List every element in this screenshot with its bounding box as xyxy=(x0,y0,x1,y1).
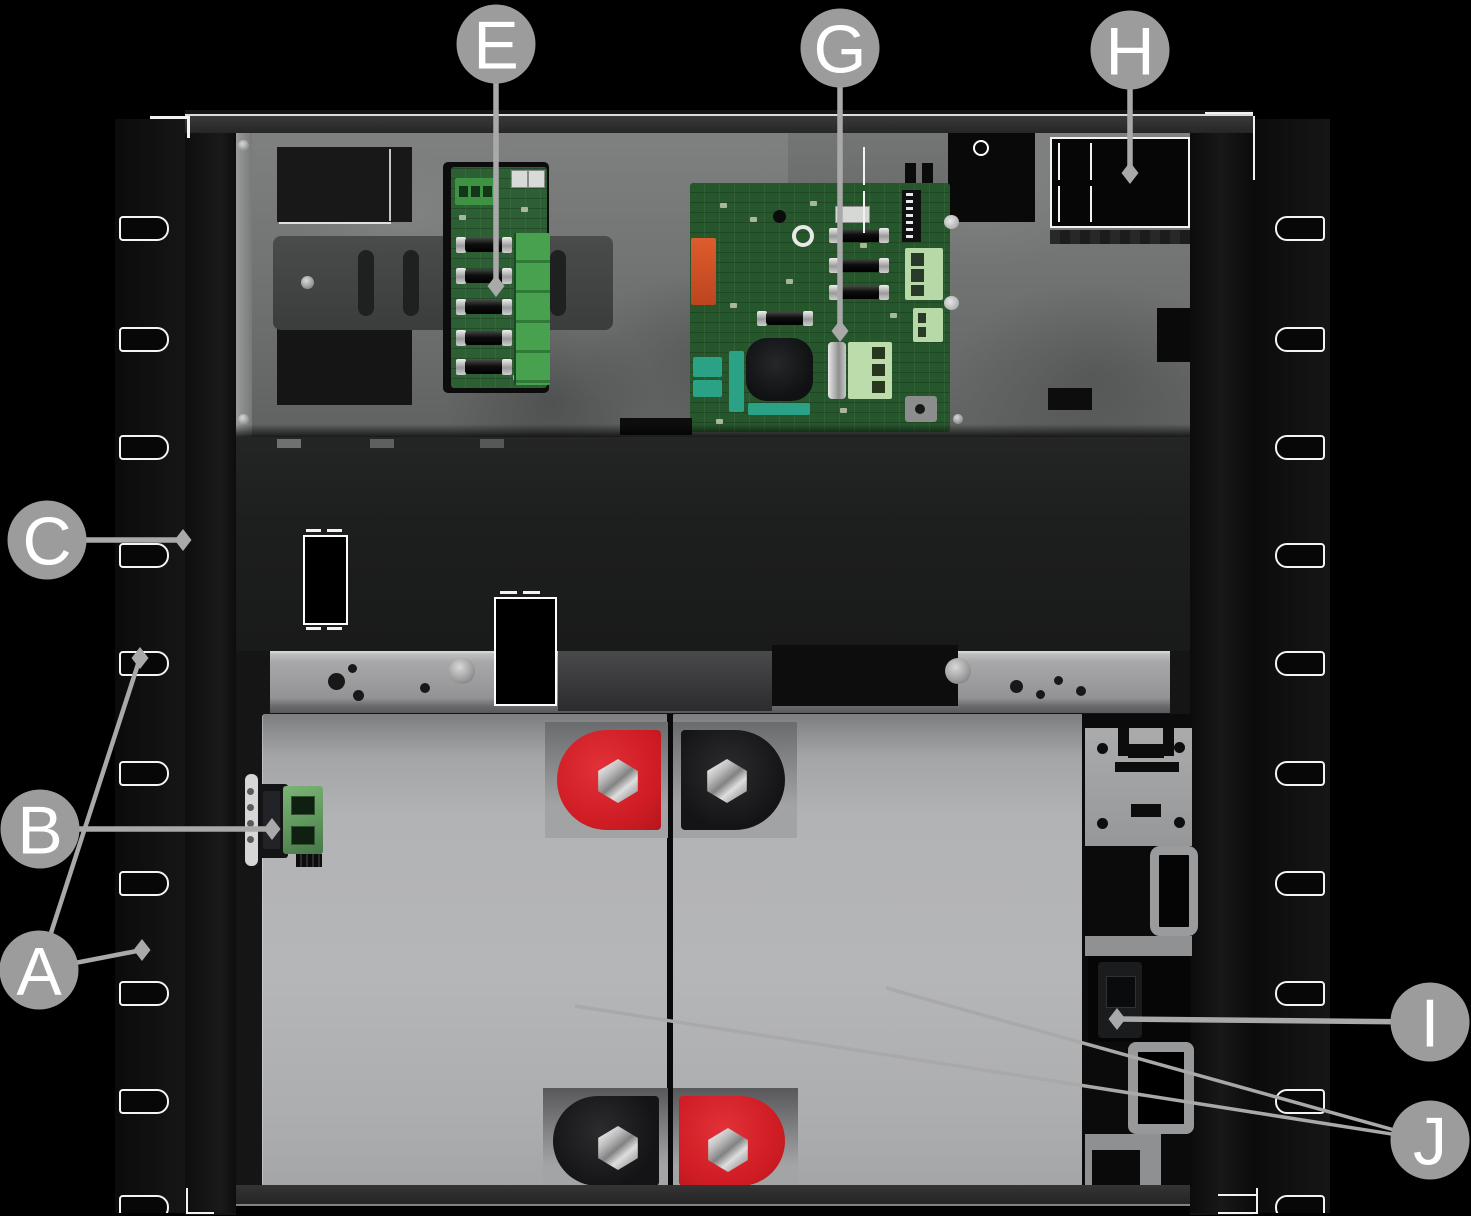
leader-diamond xyxy=(132,647,149,669)
leader-diamond xyxy=(1109,1008,1126,1030)
callout-a-letter: A xyxy=(16,933,62,1009)
callout-c-letter: C xyxy=(22,503,71,579)
callout-h-letter: H xyxy=(1105,13,1154,89)
callout-b-letter: B xyxy=(17,792,62,868)
callout-overlay: A B C E G H I J xyxy=(0,0,1471,1216)
leader-diamond xyxy=(134,939,151,961)
leader-line-i xyxy=(1117,1019,1430,1022)
callout-i-letter: I xyxy=(1421,985,1440,1061)
callout-g-letter: G xyxy=(814,11,867,87)
enclosure-illustration: A B C E G H I J xyxy=(0,0,1471,1216)
leader-diamond xyxy=(832,320,849,342)
callout-j-letter: J xyxy=(1413,1103,1447,1179)
leader-line-j xyxy=(575,1006,1430,1140)
leader-diamond xyxy=(488,275,505,297)
callout-e-letter: E xyxy=(473,7,518,83)
leader-diamond xyxy=(175,529,192,551)
leader-diamond xyxy=(1122,162,1139,184)
leader-line-j xyxy=(886,988,1430,1140)
leader-diamond xyxy=(264,818,281,840)
